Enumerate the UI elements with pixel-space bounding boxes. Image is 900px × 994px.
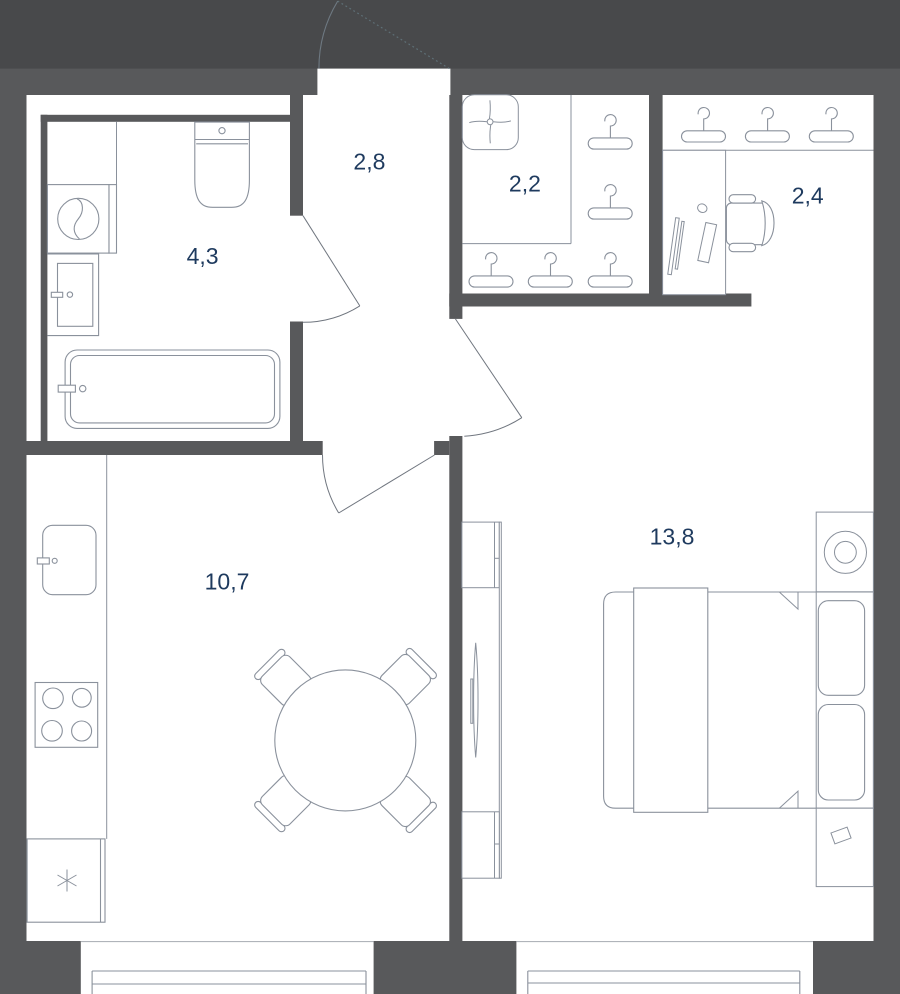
svg-text:13,8: 13,8	[650, 524, 695, 550]
svg-text:10,7: 10,7	[205, 569, 250, 595]
svg-text:2,4: 2,4	[792, 183, 824, 209]
svg-text:2,8: 2,8	[353, 149, 385, 175]
svg-text:2,2: 2,2	[509, 171, 541, 197]
svg-text:4,3: 4,3	[187, 243, 219, 269]
